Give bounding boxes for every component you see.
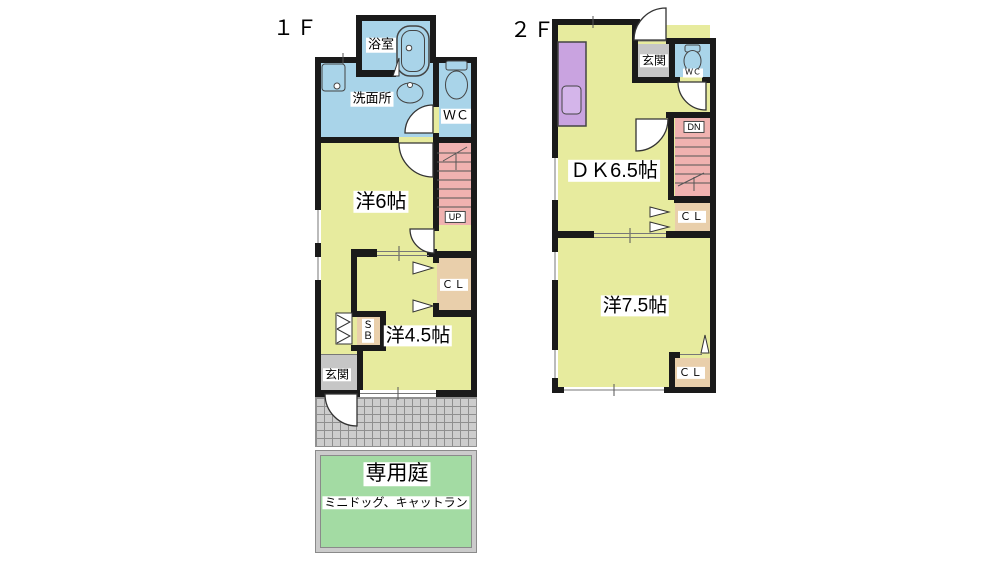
room-label-wc-1f: ＷＣ — [441, 109, 471, 124]
wall — [315, 57, 360, 63]
wall — [437, 251, 477, 258]
stairs-label-dn: DN — [684, 121, 705, 133]
floor-label-2f: ２Ｆ — [508, 19, 558, 43]
wall — [664, 387, 716, 393]
wall — [315, 137, 399, 143]
floorplan-canvas: １Ｆ 浴室 洗面所 ＷＣ 洋6帖 UP ＣＬ ＳＢ 洋4.5帖 玄関 ２Ｆ 玄関… — [0, 0, 1000, 562]
wall — [710, 38, 716, 393]
garden-subtitle: ミニドッグ、キャットラン — [322, 496, 469, 509]
wall — [552, 231, 594, 238]
wall — [356, 70, 396, 77]
closet-label-2f-room: ＣＬ — [677, 367, 705, 379]
wall — [430, 15, 436, 63]
fixtures-layer — [0, 0, 1000, 562]
wall — [552, 19, 640, 25]
closet-label-2f-hall: ＣＬ — [678, 211, 706, 223]
wall — [669, 38, 675, 82]
room-label-western45: 洋4.5帖 — [384, 325, 452, 346]
wall — [632, 19, 638, 82]
wall — [666, 231, 716, 238]
closet-label-1f: ＣＬ — [440, 279, 468, 291]
shoebox-label: ＳＢ — [362, 319, 374, 343]
room-label-washroom: 洗面所 — [350, 92, 393, 107]
wall — [315, 390, 360, 397]
room-label-western75: 洋7.5帖 — [601, 295, 669, 316]
wall — [433, 310, 477, 317]
wall — [315, 57, 321, 397]
wall — [351, 250, 357, 313]
wall — [552, 19, 558, 393]
room-wc1-floor — [439, 63, 471, 137]
wall — [674, 196, 716, 203]
wall — [668, 112, 674, 200]
room-label-western6: 洋6帖 — [353, 191, 408, 213]
wall — [552, 387, 564, 393]
wall — [471, 57, 477, 397]
wall — [436, 390, 477, 397]
wall — [702, 77, 715, 83]
wall — [433, 57, 439, 107]
floor-label-1f: １Ｆ — [271, 17, 321, 41]
wall — [433, 137, 477, 143]
wall — [433, 133, 439, 231]
wall — [356, 15, 436, 21]
wall — [427, 249, 437, 257]
stairs-label-up: UP — [445, 211, 466, 223]
tiled-porch — [315, 397, 477, 447]
room-label-dk: ＤＫ6.5帖 — [568, 160, 660, 182]
room-label-wc-2f: ＷＣ — [683, 69, 703, 78]
garden-title: 専用庭 — [364, 462, 431, 486]
room-label-bath: 浴室 — [366, 38, 396, 53]
entrance-label-1f: 玄関 — [323, 368, 351, 381]
wall — [632, 77, 680, 83]
entrance-label-2f: 玄関 — [640, 54, 668, 67]
